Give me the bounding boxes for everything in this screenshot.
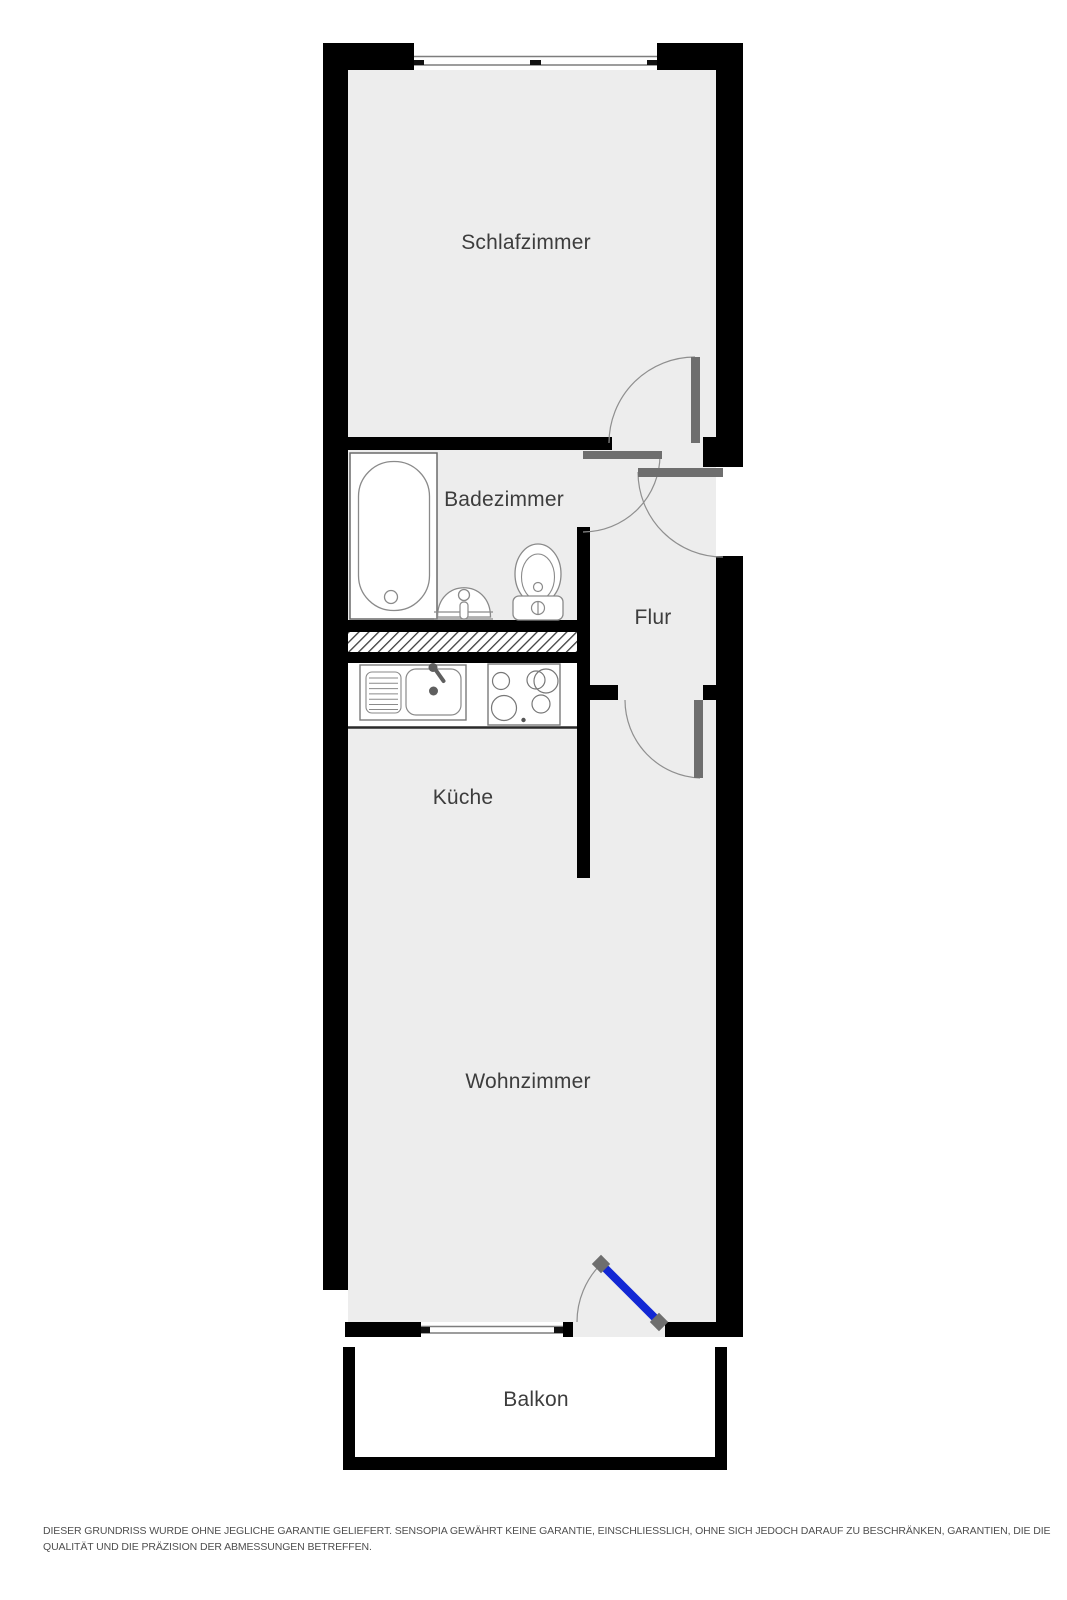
room-label-wohnzimmer: Wohnzimmer (465, 1070, 590, 1094)
room-label-balkon: Balkon (503, 1388, 568, 1412)
toilet-icon (513, 544, 563, 620)
wall-right-lower (716, 556, 743, 1337)
disclaimer-line-1: DIESER GRUNDRISS WURDE OHNE JEGLICHE GAR… (43, 1524, 1043, 1540)
bathtub-icon (350, 453, 437, 619)
wall-left (323, 43, 348, 1290)
bathroom-door-leaf (583, 451, 662, 459)
wall-bottom-mid (563, 1322, 573, 1337)
room-label-schlafzimmer: Schlafzimmer (461, 231, 591, 255)
wall-hall-stub-right (703, 685, 716, 700)
stove-icon (488, 664, 560, 725)
room-label-flur: Flur (635, 606, 672, 630)
wall-right-upper (716, 70, 743, 467)
wall-balcony-left (343, 1347, 355, 1470)
wall-bottom-right (665, 1322, 716, 1337)
wall-kitchen-hall (577, 527, 590, 878)
wall-hall-stub-left (590, 685, 618, 700)
bedroom-window (414, 43, 657, 70)
floorplan-page: Schlafzimmer Badezimmer Flur Küche Wohnz… (0, 0, 1067, 1600)
wall-balcony-right (715, 1347, 727, 1470)
room-label-kueche: Küche (433, 786, 494, 810)
entry-door-leaf (638, 468, 723, 477)
wall-balcony-bottom (343, 1457, 727, 1470)
disclaimer-line-2: QUALITÄT UND DIE PRÄZISION DER ABMESSUNG… (43, 1540, 1043, 1556)
livingroom-window (421, 1322, 563, 1337)
kitchen-sink-icon (360, 663, 466, 720)
wall-shaft-bottom (348, 652, 590, 663)
shaft-hatch-icon (348, 632, 577, 652)
wall-bedroom-bath (323, 437, 612, 450)
wall-bottom-left (345, 1322, 421, 1337)
bedroom-door-leaf (691, 357, 700, 443)
wall-top-right (657, 43, 743, 70)
disclaimer-text: DIESER GRUNDRISS WURDE OHNE JEGLICHE GAR… (43, 1524, 1043, 1555)
wall-door-jamb (703, 437, 716, 467)
wall-shaft-top (348, 620, 590, 632)
hall-door-leaf (694, 700, 703, 778)
room-label-badezimmer: Badezimmer (444, 488, 564, 512)
